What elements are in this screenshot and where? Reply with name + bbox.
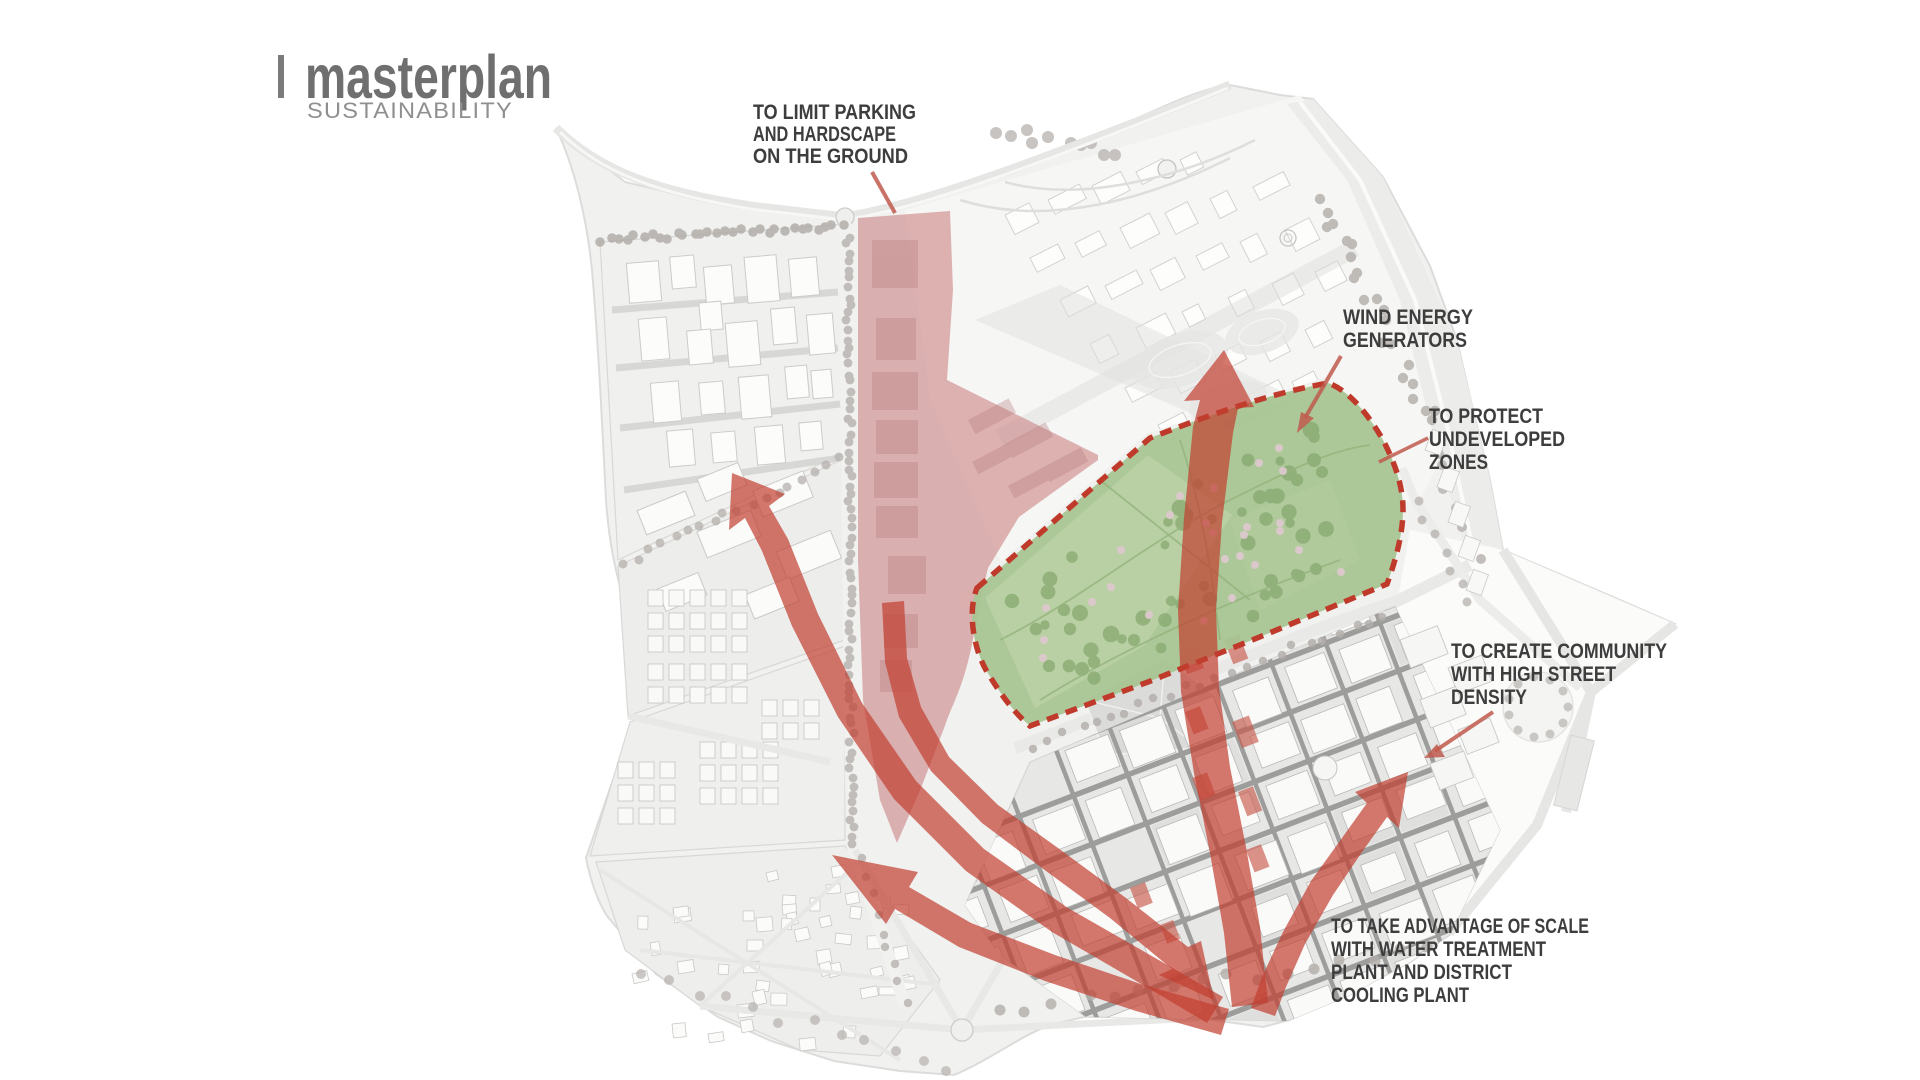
svg-text:DENSITY: DENSITY <box>1451 686 1527 709</box>
svg-text:UNDEVELOPED: UNDEVELOPED <box>1429 428 1565 451</box>
svg-text:TO LIMIT PARKING: TO LIMIT PARKING <box>753 101 916 124</box>
svg-text:WITH HIGH STREET: WITH HIGH STREET <box>1451 663 1616 686</box>
svg-text:WITH WATER TREATMENT: WITH WATER TREATMENT <box>1331 938 1546 961</box>
svg-text:TO CREATE COMMUNITY: TO CREATE COMMUNITY <box>1451 640 1667 663</box>
svg-text:ON THE GROUND: ON THE GROUND <box>753 145 908 168</box>
svg-text:TO TAKE ADVANTAGE OF SCALE: TO TAKE ADVANTAGE OF SCALE <box>1331 915 1589 938</box>
svg-text:COOLING PLANT: COOLING PLANT <box>1331 984 1469 1007</box>
svg-text:AND HARDSCAPE: AND HARDSCAPE <box>753 123 896 146</box>
svg-text:TO PROTECT: TO PROTECT <box>1429 405 1543 428</box>
svg-text:PLANT AND DISTRICT: PLANT AND DISTRICT <box>1331 961 1512 984</box>
svg-text:ZONES: ZONES <box>1429 451 1488 474</box>
svg-text:WIND ENERGY: WIND ENERGY <box>1343 306 1473 329</box>
svg-text:GENERATORS: GENERATORS <box>1343 329 1467 352</box>
svg-text:SUSTAINABILITY: SUSTAINABILITY <box>307 98 513 123</box>
